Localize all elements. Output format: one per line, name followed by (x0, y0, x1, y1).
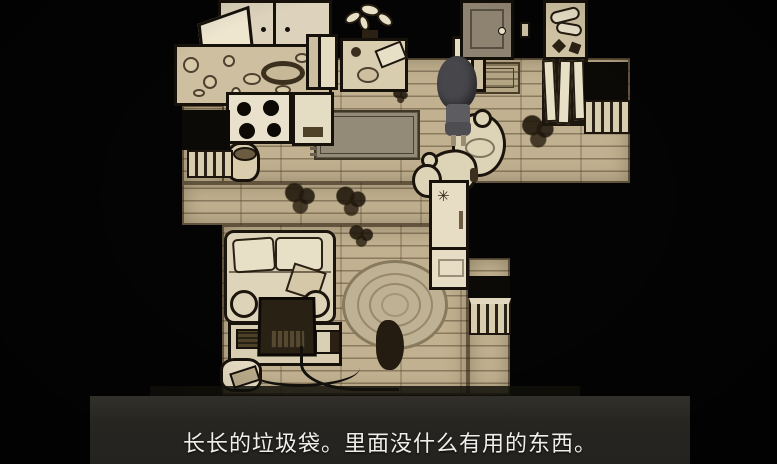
plate-on-table (357, 67, 379, 83)
player-character-leg (461, 135, 466, 146)
shelf-trinket (552, 39, 566, 53)
fridge-handle (459, 211, 463, 229)
radiator-left (187, 150, 233, 178)
door-handle (498, 27, 506, 35)
shelf-scarf (555, 21, 583, 37)
sofa-seam (229, 271, 331, 273)
shelf-trinket (569, 42, 582, 55)
subtitle-text: 长长的垃圾袋。里面没什么有用的东西。 (90, 426, 690, 458)
debris-pile (283, 180, 319, 216)
hall-rug-border (320, 116, 414, 154)
cabinet-knob (261, 27, 266, 32)
light-switch[interactable] (520, 22, 530, 38)
dialog-panel: 长长的垃圾袋。里面没什么有用的东西。 (90, 396, 690, 464)
side-table-right[interactable] (584, 62, 628, 100)
game-screen: ✳ 长长的垃圾袋。里面没什么有用的东西。 (0, 0, 777, 464)
plate (183, 57, 199, 73)
bottle-by-bags (470, 168, 478, 182)
debris-pile (347, 224, 377, 248)
cup-on-table (351, 47, 361, 57)
book-on-table (374, 40, 407, 68)
tv-vent (272, 331, 305, 347)
fridge-vent (438, 259, 464, 277)
hanging-coat (542, 60, 557, 123)
counter-item (303, 127, 323, 137)
plate (203, 75, 217, 89)
round-rug-center (381, 293, 409, 317)
refrigerator[interactable]: ✳ (429, 180, 469, 290)
dining-table[interactable] (340, 38, 408, 92)
hanging-coat (557, 60, 572, 124)
stove-burner (239, 123, 255, 139)
radiator-right (584, 100, 630, 134)
corridor-table (468, 276, 510, 298)
chair-back (309, 37, 321, 87)
cabinet-knob (285, 27, 290, 32)
stove-burner (267, 123, 281, 137)
stove[interactable] (226, 92, 292, 144)
player-character-hair[interactable] (437, 56, 477, 110)
dirty-pan (261, 61, 305, 85)
chair-left[interactable] (306, 34, 338, 90)
garbage-bag-knot (473, 109, 492, 128)
bin-lid (233, 147, 257, 161)
player-character-skirt (445, 122, 471, 136)
front-door[interactable] (460, 0, 514, 60)
stove-burner (263, 100, 279, 116)
plate (243, 73, 261, 85)
sofa-cushion (232, 237, 276, 274)
wall-shelf[interactable] (543, 0, 588, 60)
fridge-divider (432, 247, 466, 250)
sofa-armrest (230, 290, 258, 318)
stove-burner (237, 102, 251, 116)
debris-pile (334, 184, 370, 218)
plant-leaf (375, 10, 396, 30)
radiator-corridor (469, 298, 511, 335)
cup (223, 55, 235, 67)
player-character-leg (451, 135, 456, 146)
kitchen-counter-corner[interactable] (292, 92, 334, 146)
coat-rack[interactable] (542, 60, 588, 126)
side-table-left[interactable] (182, 110, 230, 150)
plate (193, 89, 205, 97)
snowflake-icon: ✳ (437, 189, 450, 204)
